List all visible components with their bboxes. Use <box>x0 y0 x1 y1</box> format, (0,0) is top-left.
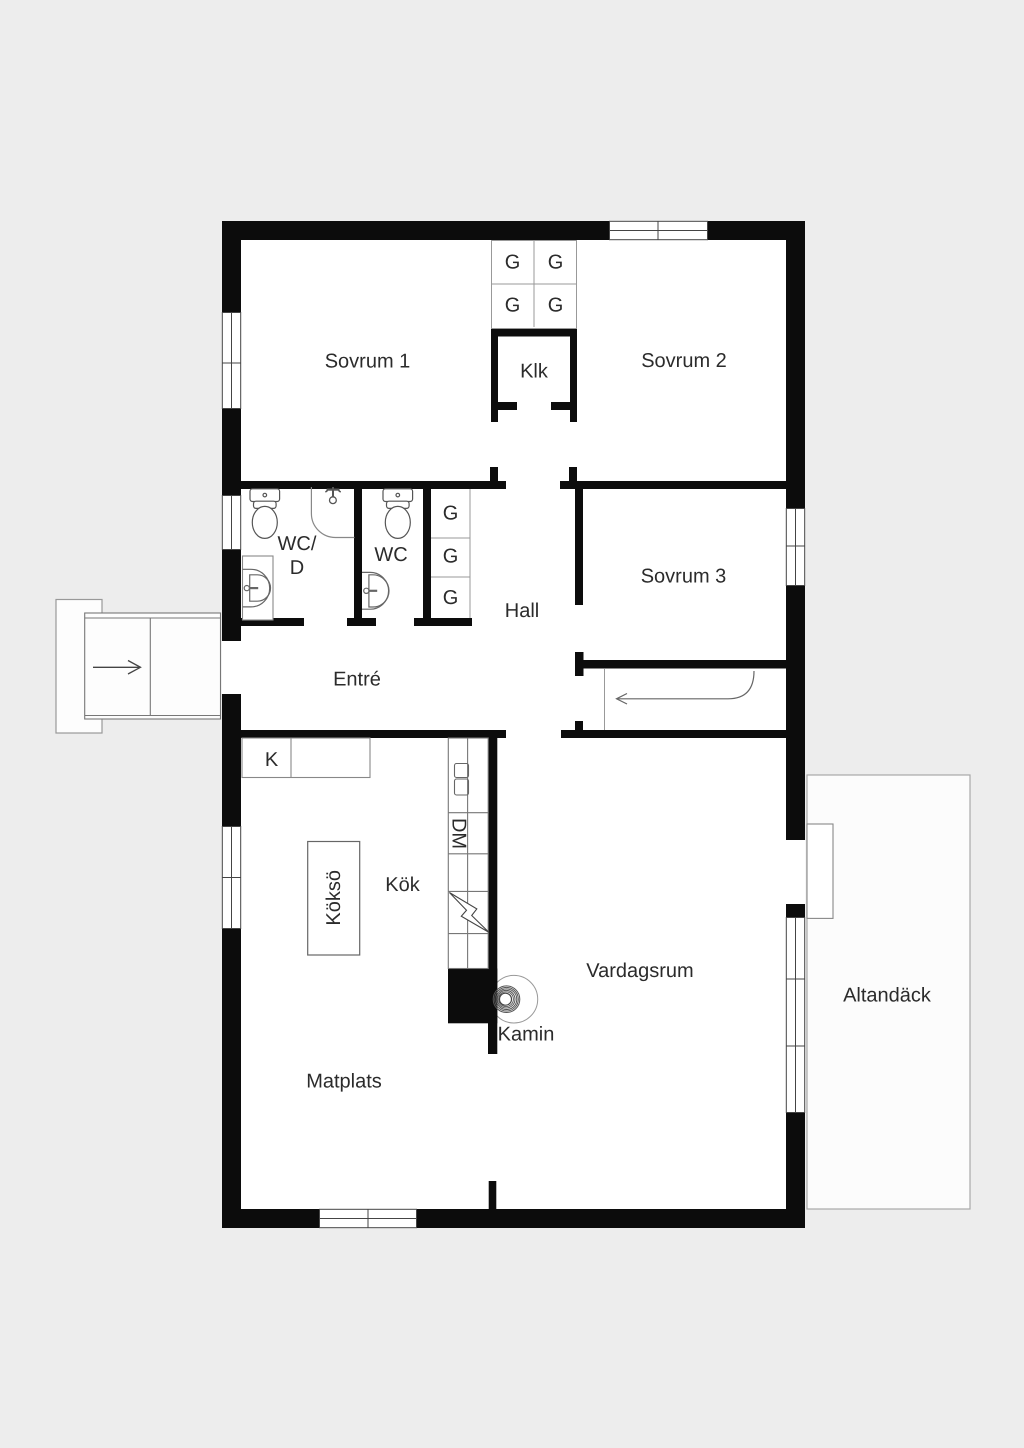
svg-text:G: G <box>505 295 521 317</box>
svg-text:Sovrum 2: Sovrum 2 <box>641 350 727 372</box>
svg-text:K: K <box>265 749 279 771</box>
svg-text:G: G <box>548 295 564 317</box>
svg-text:Matplats: Matplats <box>306 1071 382 1093</box>
svg-text:G: G <box>443 587 459 609</box>
svg-text:WC/: WC/ <box>278 533 317 555</box>
svg-text:G: G <box>443 546 459 568</box>
svg-text:Hall: Hall <box>505 600 539 622</box>
svg-text:Kök: Kök <box>385 874 420 896</box>
svg-text:Entré: Entré <box>333 669 381 691</box>
svg-text:G: G <box>443 503 459 525</box>
svg-text:WC: WC <box>374 544 407 566</box>
svg-text:D: D <box>290 557 304 579</box>
svg-text:DM: DM <box>448 818 470 849</box>
svg-text:Sovrum 3: Sovrum 3 <box>641 566 727 588</box>
svg-text:G: G <box>548 252 564 274</box>
svg-text:Vardagsrum: Vardagsrum <box>586 960 693 982</box>
svg-text:Sovrum 1: Sovrum 1 <box>325 351 411 373</box>
svg-text:G: G <box>505 252 521 274</box>
svg-text:Köksö: Köksö <box>323 870 345 926</box>
svg-text:Altandäck: Altandäck <box>843 985 932 1007</box>
svg-text:Klk: Klk <box>520 361 549 383</box>
svg-text:Kamin: Kamin <box>498 1024 555 1046</box>
